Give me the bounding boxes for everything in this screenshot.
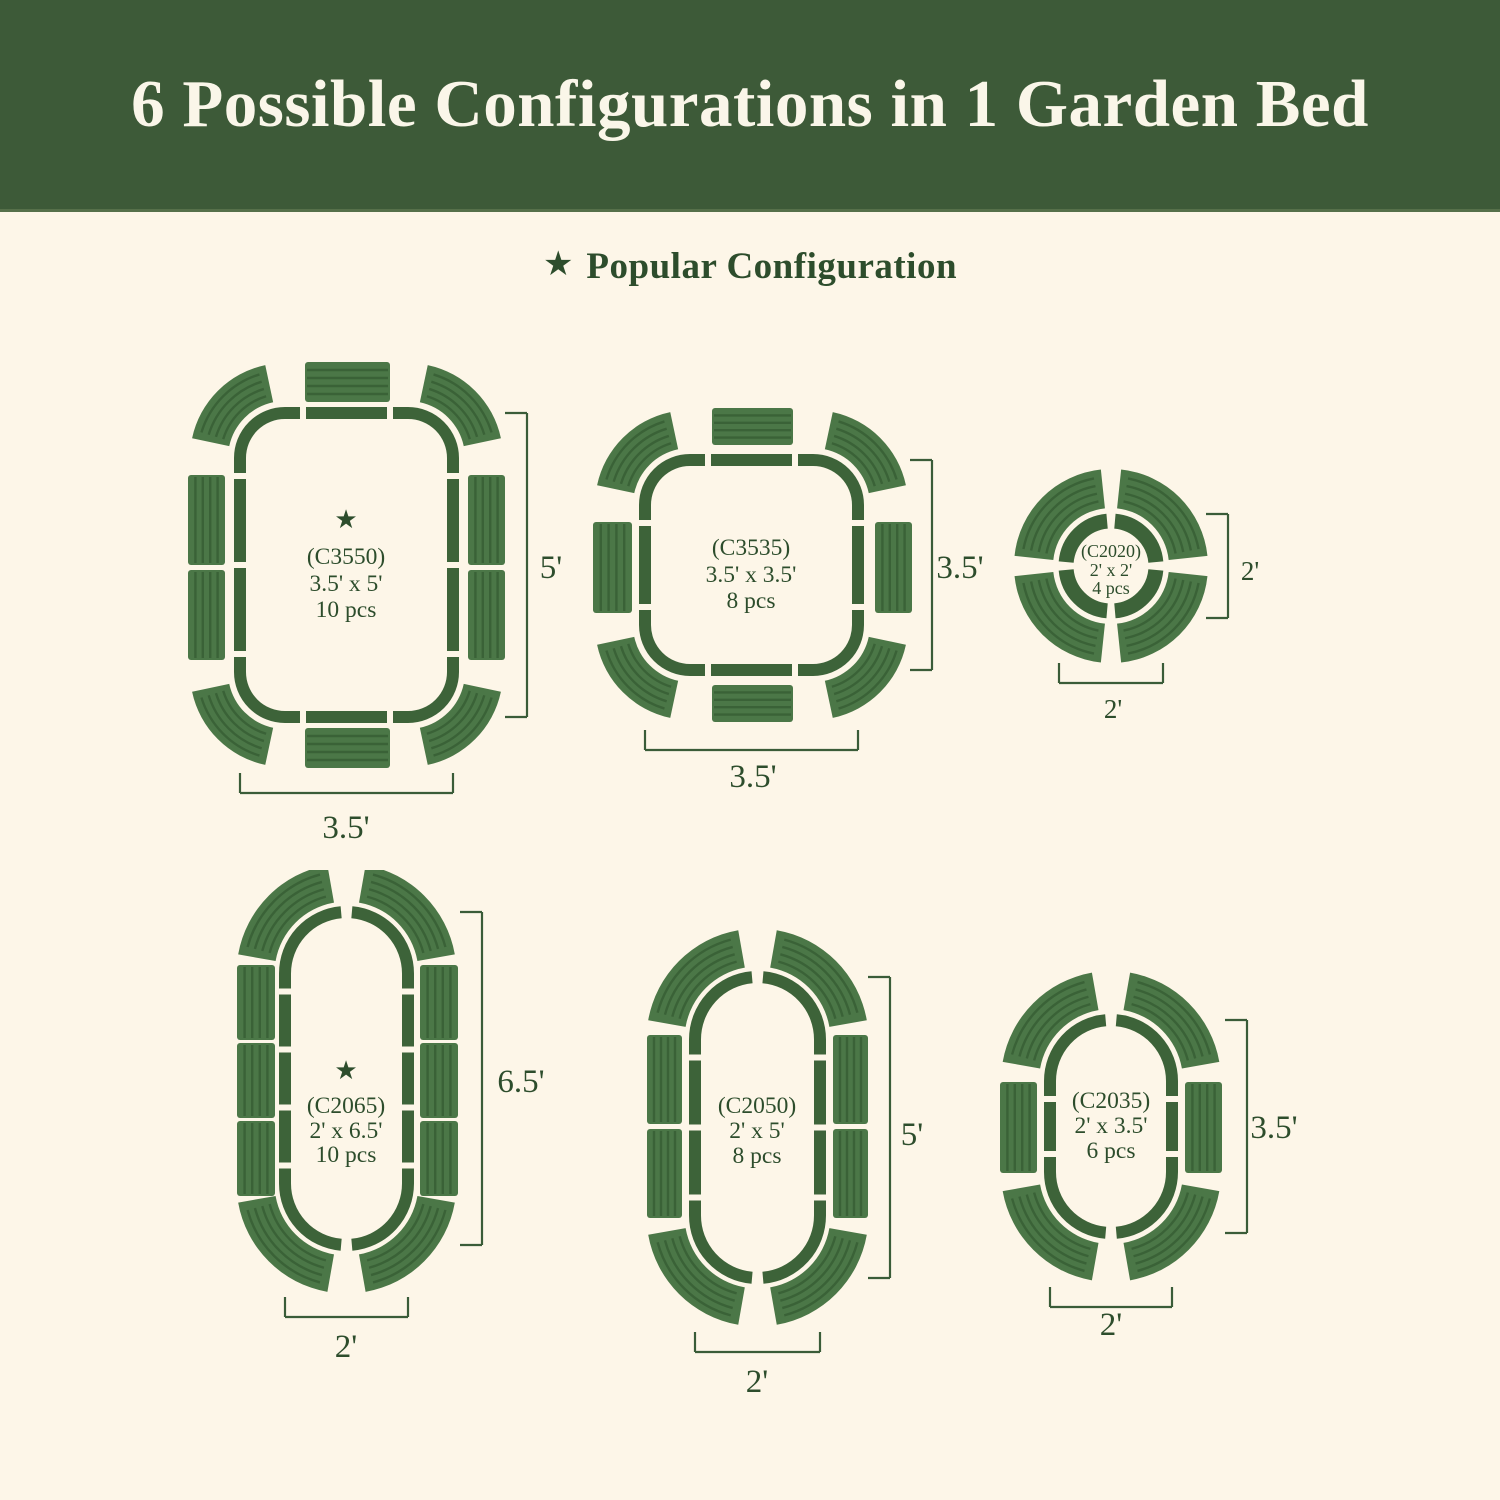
width-dimension: 2'	[285, 1297, 408, 1365]
popular-configuration-legend: ★ Popular Configuration	[0, 238, 1500, 294]
config-size: 2' x 6.5'	[309, 1118, 382, 1144]
straight-panel	[420, 1121, 458, 1196]
curved-corner-panel	[825, 637, 906, 718]
straight-panel	[712, 685, 793, 722]
straight-panel	[833, 1035, 868, 1124]
straight-panel	[305, 728, 390, 768]
title-banner: 6 Possible Configurations in 1 Garden Be…	[0, 0, 1500, 212]
straight-panel	[420, 1043, 458, 1118]
straight-panel	[1000, 1082, 1037, 1173]
config-code: (C2050)	[718, 1093, 796, 1119]
config-diagram-C2035: (C2035)2' x 3.5'6 pcs3.5'2'	[990, 965, 1330, 1360]
height-dimension: 6.5'	[460, 912, 545, 1245]
config-diagram-svg-C2050: (C2050)2' x 5'8 pcs5'2'	[640, 930, 970, 1405]
config-text: (C2020)2' x 2'4 pcs	[1081, 541, 1141, 598]
curved-corner-panel	[1117, 572, 1207, 662]
curved-corner-panel	[192, 365, 273, 446]
config-diagram-C3535: (C3535)3.5' x 3.5'8 pcs3.5'3.5'	[590, 395, 990, 795]
bed-outline-segment	[798, 460, 858, 520]
width-dimension-label: 2'	[335, 1329, 357, 1365]
popular-star-icon: ★	[334, 1056, 357, 1085]
straight-panel	[305, 362, 390, 402]
config-text: (C2050)2' x 5'8 pcs	[718, 1093, 796, 1169]
config-size: 2' x 3.5'	[1074, 1113, 1147, 1139]
curved-corner-panel	[420, 684, 501, 765]
config-code: (C3550)	[307, 544, 385, 570]
height-dimension: 5'	[868, 977, 923, 1278]
straight-panel	[1185, 1082, 1222, 1173]
config-text: (C2035)2' x 3.5'6 pcs	[1072, 1088, 1150, 1164]
config-diagram-svg-C2035: (C2035)2' x 3.5'6 pcs3.5'2'	[990, 965, 1330, 1360]
width-dimension: 2'	[1050, 1287, 1172, 1343]
bed-outline-segment	[645, 610, 705, 670]
width-dimension: 2'	[695, 1332, 820, 1400]
curved-corner-panel	[825, 412, 906, 493]
curved-corner-panel	[597, 412, 678, 493]
config-diagram-C3550: ★(C3550)3.5' x 5'10 pcs5'3.5'	[165, 350, 590, 855]
config-piece-count: 10 pcs	[316, 1142, 377, 1168]
straight-panel	[833, 1129, 868, 1218]
config-size: 2' x 2'	[1090, 560, 1133, 580]
bed-outline-segment	[240, 413, 300, 473]
width-dimension: 2'	[1059, 663, 1163, 724]
straight-panel	[188, 570, 225, 660]
straight-panel	[188, 475, 225, 565]
popular-star-icon: ★	[334, 505, 357, 534]
straight-panel	[647, 1035, 682, 1124]
config-piece-count: 8 pcs	[733, 1143, 782, 1169]
width-dimension: 3.5'	[240, 773, 453, 846]
straight-panel	[647, 1129, 682, 1218]
config-size: 2' x 5'	[729, 1118, 784, 1144]
straight-panel	[237, 965, 275, 1040]
width-dimension-label: 3.5'	[729, 759, 776, 795]
config-piece-count: 6 pcs	[1087, 1138, 1136, 1164]
bed-outline-segment	[240, 657, 300, 717]
config-code: (C2020)	[1081, 541, 1141, 562]
width-dimension: 3.5'	[645, 730, 858, 795]
config-diagram-svg-C2020: (C2020)2' x 2'4 pcs2'2'	[990, 450, 1310, 735]
config-piece-count: 10 pcs	[316, 597, 377, 623]
straight-panel	[712, 408, 793, 445]
config-code: (C3535)	[712, 535, 790, 561]
config-code: (C2065)	[307, 1093, 385, 1119]
config-diagram-svg-C2065: ★(C2065)2' x 6.5'10 pcs6.5'2'	[180, 870, 600, 1370]
width-dimension-label: 3.5'	[322, 810, 369, 846]
config-diagram-C2065: ★(C2065)2' x 6.5'10 pcs6.5'2'	[180, 870, 600, 1370]
bed-outline-segment	[798, 610, 858, 670]
config-size: 3.5' x 5'	[309, 571, 382, 597]
bed-outline-segment	[645, 460, 705, 520]
config-diagram-svg-C3550: ★(C3550)3.5' x 5'10 pcs5'3.5'	[165, 350, 590, 855]
config-code: (C2035)	[1072, 1088, 1150, 1114]
straight-panel	[875, 522, 912, 613]
width-dimension-label: 2'	[1100, 1307, 1122, 1343]
config-diagram-C2050: (C2050)2' x 5'8 pcs5'2'	[640, 930, 970, 1405]
straight-panel	[237, 1121, 275, 1196]
legend-label: Popular Configuration	[586, 245, 957, 288]
straight-panel	[420, 965, 458, 1040]
curved-corner-panel	[192, 684, 273, 765]
height-dimension: 3.5'	[910, 460, 984, 670]
height-dimension-label: 2'	[1241, 556, 1259, 586]
bed-outline-segment	[393, 413, 453, 473]
straight-panel	[237, 1043, 275, 1118]
config-text: ★(C2065)2' x 6.5'10 pcs	[307, 1056, 385, 1168]
config-text: (C3535)3.5' x 3.5'8 pcs	[706, 535, 797, 614]
straight-panel	[468, 475, 505, 565]
height-dimension-label: 5'	[901, 1117, 923, 1153]
star-icon: ★	[543, 247, 573, 281]
height-dimension-label: 3.5'	[1250, 1110, 1297, 1146]
page-title: 6 Possible Configurations in 1 Garden Be…	[131, 66, 1369, 143]
width-dimension-label: 2'	[746, 1364, 768, 1400]
infographic-canvas: 6 Possible Configurations in 1 Garden Be…	[0, 0, 1500, 1500]
config-piece-count: 4 pcs	[1092, 578, 1130, 598]
config-text: ★(C3550)3.5' x 5'10 pcs	[307, 505, 385, 623]
height-dimension-label: 5'	[540, 550, 562, 586]
height-dimension: 3.5'	[1225, 1020, 1298, 1233]
height-dimension: 5'	[505, 413, 562, 717]
config-piece-count: 8 pcs	[727, 588, 776, 614]
config-size: 3.5' x 3.5'	[706, 562, 797, 588]
straight-panel	[593, 522, 632, 613]
bed-outline-segment	[393, 657, 453, 717]
curved-corner-panel	[597, 637, 678, 718]
height-dimension: 2'	[1206, 514, 1259, 618]
config-diagram-svg-C3535: (C3535)3.5' x 3.5'8 pcs3.5'3.5'	[590, 395, 990, 795]
straight-panel	[468, 570, 505, 660]
curved-corner-panel	[420, 365, 501, 446]
height-dimension-label: 6.5'	[497, 1064, 544, 1100]
config-diagram-C2020: (C2020)2' x 2'4 pcs2'2'	[990, 450, 1310, 735]
width-dimension-label: 2'	[1104, 694, 1122, 724]
height-dimension-label: 3.5'	[936, 550, 983, 586]
